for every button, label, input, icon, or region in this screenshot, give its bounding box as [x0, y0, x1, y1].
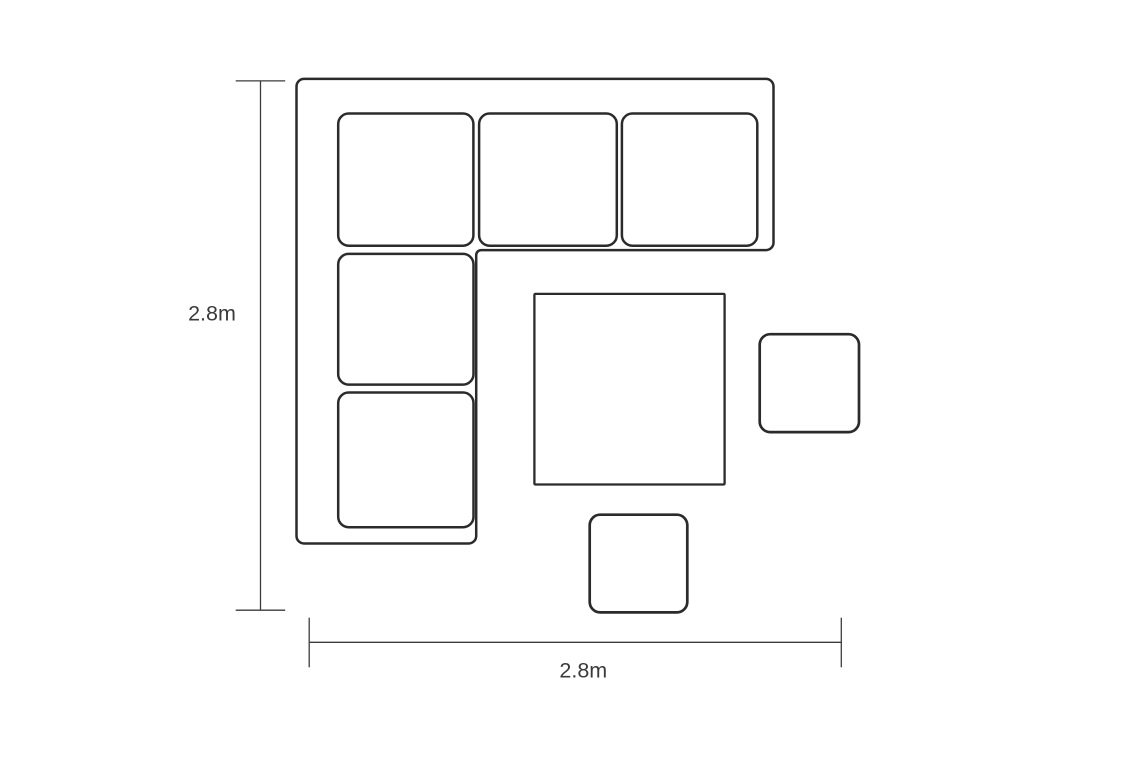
svg-text:2.8m: 2.8m [559, 659, 607, 683]
svg-text:2.8m: 2.8m [188, 302, 236, 326]
